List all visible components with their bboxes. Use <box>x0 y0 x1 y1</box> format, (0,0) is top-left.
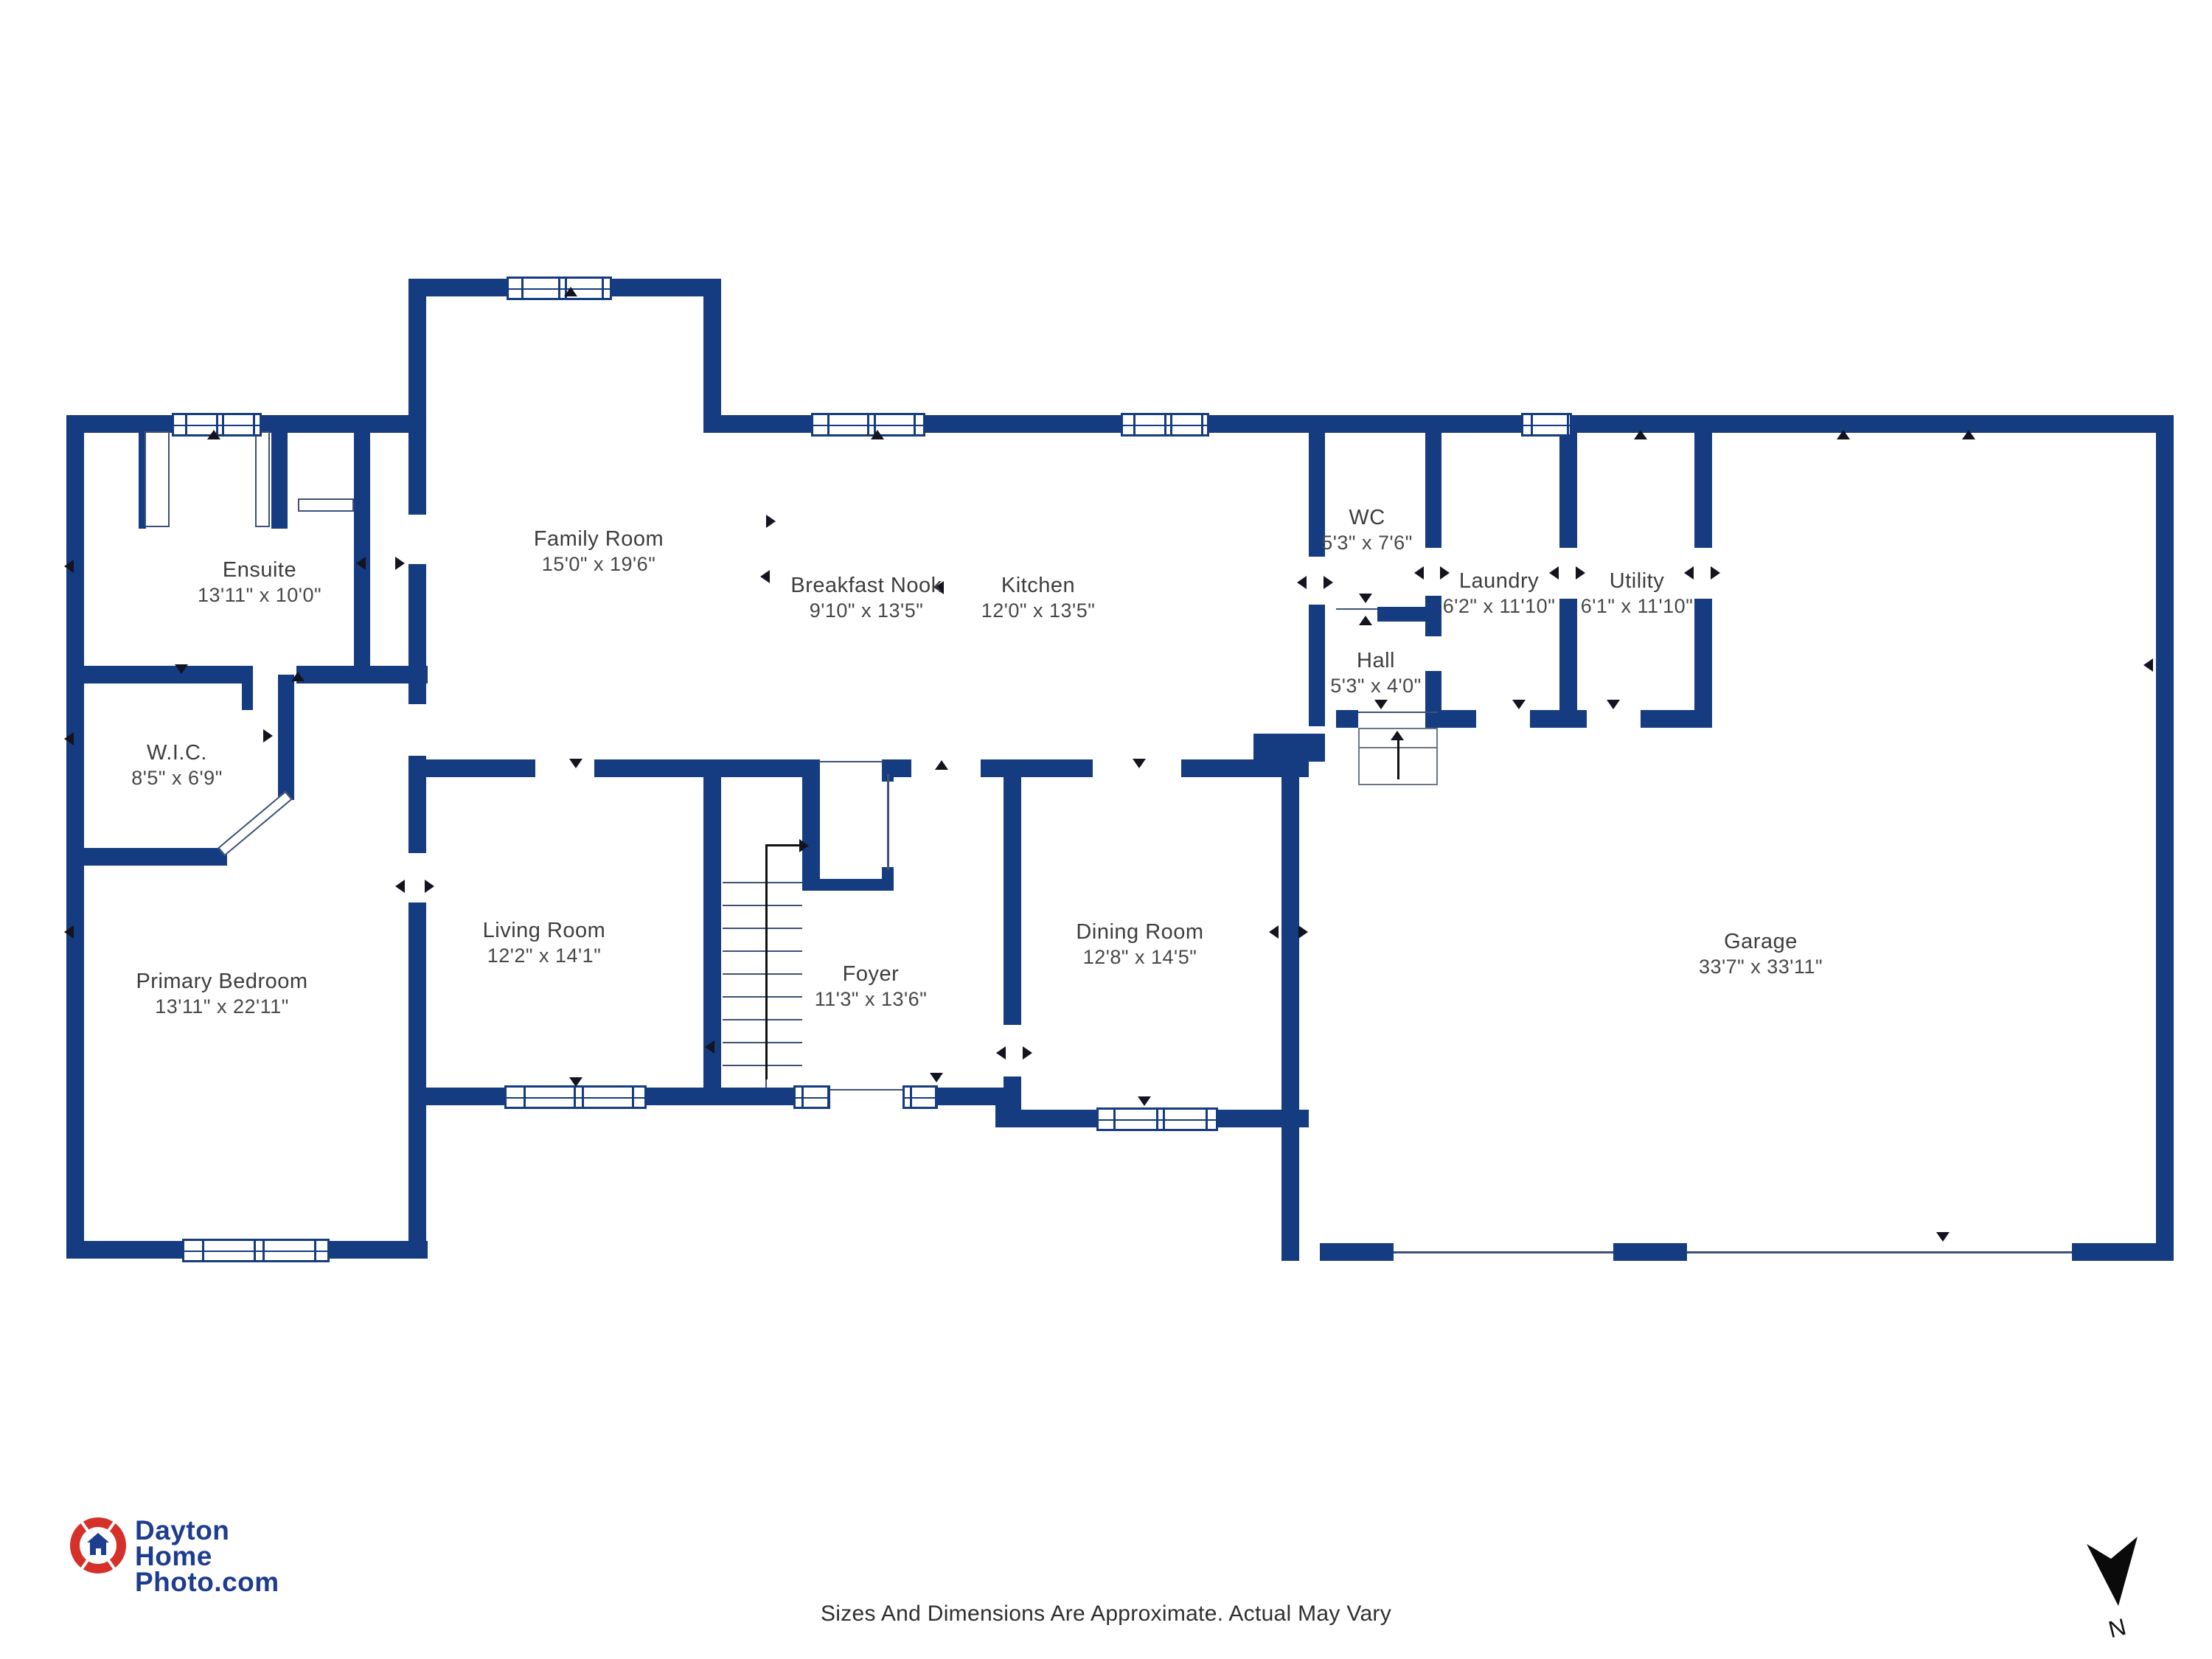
logo-line-dayton: Dayton <box>135 1517 279 1543</box>
window-symbol <box>1521 413 1572 437</box>
wall-segment <box>1425 415 1441 548</box>
north-arrow: N <box>2070 1528 2181 1653</box>
room-label-wic: W.I.C.8'5" x 6'9" <box>131 740 223 791</box>
wall-segment <box>1559 599 1577 728</box>
room-label-living-room: Living Room12'2" x 14'1" <box>483 917 606 969</box>
door-marker-down <box>1138 1096 1151 1106</box>
door-marker-down <box>1359 594 1372 603</box>
wall-segment <box>408 759 535 777</box>
thin-wall-line <box>1336 608 1377 610</box>
window-symbol <box>1096 1107 1218 1131</box>
door-marker-left <box>760 570 770 583</box>
door-marker-down <box>1607 700 1620 709</box>
window-center-line <box>174 425 260 426</box>
disclaimer-text: Sizes And Dimensions Are Approximate. Ac… <box>821 1601 1391 1627</box>
window-symbol <box>182 1239 330 1262</box>
shutter-inner-circle <box>80 1527 116 1564</box>
logo-line-home: Home <box>135 1543 279 1569</box>
door-marker-up <box>291 672 305 681</box>
wall-segment <box>981 759 1093 777</box>
door-marker-up <box>1837 430 1850 439</box>
wall-segment <box>408 902 426 1242</box>
door-marker-up <box>871 430 884 439</box>
door-marker-up <box>1962 430 1975 439</box>
door-marker-left <box>395 880 405 893</box>
wall-segment <box>1530 710 1587 728</box>
window-symbol <box>902 1085 938 1109</box>
door-marker-up <box>1634 430 1647 439</box>
wall-segment <box>1004 759 1021 1025</box>
entry-arrow <box>1397 738 1399 779</box>
room-label-ensuite: Ensuite13'11" x 10'0" <box>198 557 321 608</box>
room-label-dining-room: Dining Room12'8" x 14'5" <box>1076 919 1203 970</box>
wall-segment <box>271 431 288 529</box>
thin-wall-line <box>1687 1251 2072 1253</box>
wall-segment <box>802 879 894 891</box>
window-center-line <box>1099 1119 1216 1121</box>
wall-segment <box>1281 759 1299 1261</box>
room-label-primary-bedroom: Primary Bedroom13'11" x 22'11" <box>136 968 307 1020</box>
door-marker-down <box>1512 700 1526 709</box>
wall-segment <box>2072 1243 2174 1261</box>
logo-line-photocom: Photo.com <box>135 1569 279 1595</box>
stair-tread <box>723 996 802 998</box>
window-center-line <box>905 1097 936 1099</box>
window-symbol <box>507 276 612 300</box>
door-marker-right <box>766 515 776 528</box>
window-center-line <box>507 1097 644 1099</box>
door-marker-left <box>705 1040 714 1054</box>
wall-segment <box>894 759 911 777</box>
door-marker-down <box>1374 700 1388 709</box>
door-slab <box>298 498 354 512</box>
wall-segment <box>2156 415 2174 1261</box>
wall-segment <box>703 279 721 433</box>
door-marker-left <box>996 1046 1006 1060</box>
door-marker-left <box>2143 658 2153 672</box>
window-center-line <box>509 288 610 290</box>
door-marker-right <box>395 557 405 570</box>
wall-segment <box>1253 734 1325 762</box>
door-marker-left <box>1269 925 1279 939</box>
stair-tread <box>723 928 802 929</box>
window-symbol <box>793 1085 830 1109</box>
door-marker-down <box>930 1073 943 1082</box>
camera-shutter-house-icon <box>70 1517 126 1573</box>
door-marker-up <box>935 760 948 770</box>
door-marker-left <box>64 925 74 939</box>
logo-wordmark: Dayton Home Photo.com <box>135 1517 279 1595</box>
wall-segment <box>721 759 802 777</box>
window-center-line <box>796 1097 828 1099</box>
door-marker-down <box>569 1077 582 1087</box>
wall-segment <box>1694 599 1712 728</box>
door-marker-left <box>1414 566 1424 580</box>
stair-up-arrowhead-icon <box>799 839 809 852</box>
window-center-line <box>1123 425 1207 426</box>
room-label-foyer: Foyer11'3" x 13'6" <box>815 961 928 1012</box>
room-label-family-room: Family Room15'0" x 19'6" <box>534 526 664 577</box>
door-marker-down <box>175 664 188 674</box>
door-marker-up <box>1359 616 1372 625</box>
wall-segment <box>66 415 84 1257</box>
window-center-line <box>1523 425 1570 426</box>
window-symbol <box>504 1085 647 1109</box>
door-marker-right <box>1324 576 1333 589</box>
wall-segment <box>1377 607 1441 622</box>
stair-tread <box>723 882 802 883</box>
door-marker-down <box>1936 1232 1950 1242</box>
door-marker-right <box>1298 925 1308 939</box>
door-marker-left <box>64 732 74 745</box>
wall-segment <box>242 666 253 710</box>
wall-segment <box>1613 1243 1687 1261</box>
wall-segment <box>802 759 820 888</box>
house-door-icon <box>96 1548 101 1555</box>
room-label-wc: WC5'3" x 7'6" <box>1321 504 1413 556</box>
window-center-line <box>813 425 923 426</box>
room-label-hall: Hall5'3" x 4'0" <box>1330 647 1422 699</box>
door-marker-up <box>207 430 220 439</box>
room-label-kitchen: Kitchen12'0" x 13'5" <box>981 572 1096 624</box>
wall-segment <box>408 279 426 515</box>
door-marker-right <box>1023 1046 1032 1060</box>
stair-tread <box>723 905 802 906</box>
stair-tread <box>723 973 802 975</box>
room-label-laundry: Laundry6'2" x 11'10" <box>1443 568 1556 619</box>
room-label-utility: Utility6'1" x 11'10" <box>1581 568 1694 619</box>
wall-segment <box>354 431 370 666</box>
door-slab <box>145 431 170 527</box>
door-marker-right <box>263 729 273 742</box>
wall-segment <box>66 848 227 866</box>
wall-segment <box>278 675 294 800</box>
door-slab <box>218 791 293 857</box>
wall-segment <box>1694 415 1712 548</box>
wall-segment <box>594 759 721 777</box>
window-symbol <box>1121 413 1209 437</box>
door-marker-right <box>1711 566 1720 580</box>
thin-wall-line <box>1394 1251 1613 1253</box>
thin-wall-line <box>1358 712 1438 713</box>
stair-up-arrow-vertical <box>765 844 768 1079</box>
wall-segment <box>1438 710 1476 728</box>
dayton-home-photo-logo: Dayton Home Photo.com <box>70 1517 279 1595</box>
wall-segment <box>408 1088 506 1105</box>
stair-tread <box>723 1042 802 1043</box>
wall-segment <box>995 1110 1096 1127</box>
thin-wall-line <box>887 774 889 870</box>
door-marker-right <box>425 880 434 893</box>
thin-wall-line <box>818 761 883 762</box>
wall-segment <box>1336 710 1358 728</box>
wall-segment <box>1309 605 1325 726</box>
door-marker-left <box>1297 576 1307 589</box>
wall-segment <box>646 1088 793 1105</box>
door-marker-down <box>1133 759 1146 768</box>
stair-tread <box>723 1065 802 1066</box>
room-label-garage: Garage33'7" x 33'11" <box>1699 928 1823 980</box>
entry-arrowhead-icon <box>1391 731 1404 740</box>
room-label-breakfast-nook: Breakfast Nook9'10" x 13'5" <box>790 572 942 624</box>
wall-segment <box>66 666 243 684</box>
wall-segment <box>1320 1243 1394 1261</box>
door-marker-left <box>356 557 366 570</box>
stair-tread <box>723 1019 802 1020</box>
door-marker-down <box>569 759 582 768</box>
door-marker-up <box>564 287 577 296</box>
stair-up-arrow-horizontal <box>765 844 801 846</box>
stair-tread <box>723 950 802 952</box>
door-slab <box>255 431 270 527</box>
window-center-line <box>184 1251 327 1252</box>
house-roof-icon <box>87 1533 109 1543</box>
window-symbol <box>811 413 925 437</box>
floor-plan-page: Ensuite13'11" x 10'0" W.I.C.8'5" x 6'9" … <box>0 0 2212 1659</box>
wall-segment <box>296 666 428 684</box>
door-marker-left <box>64 560 74 573</box>
